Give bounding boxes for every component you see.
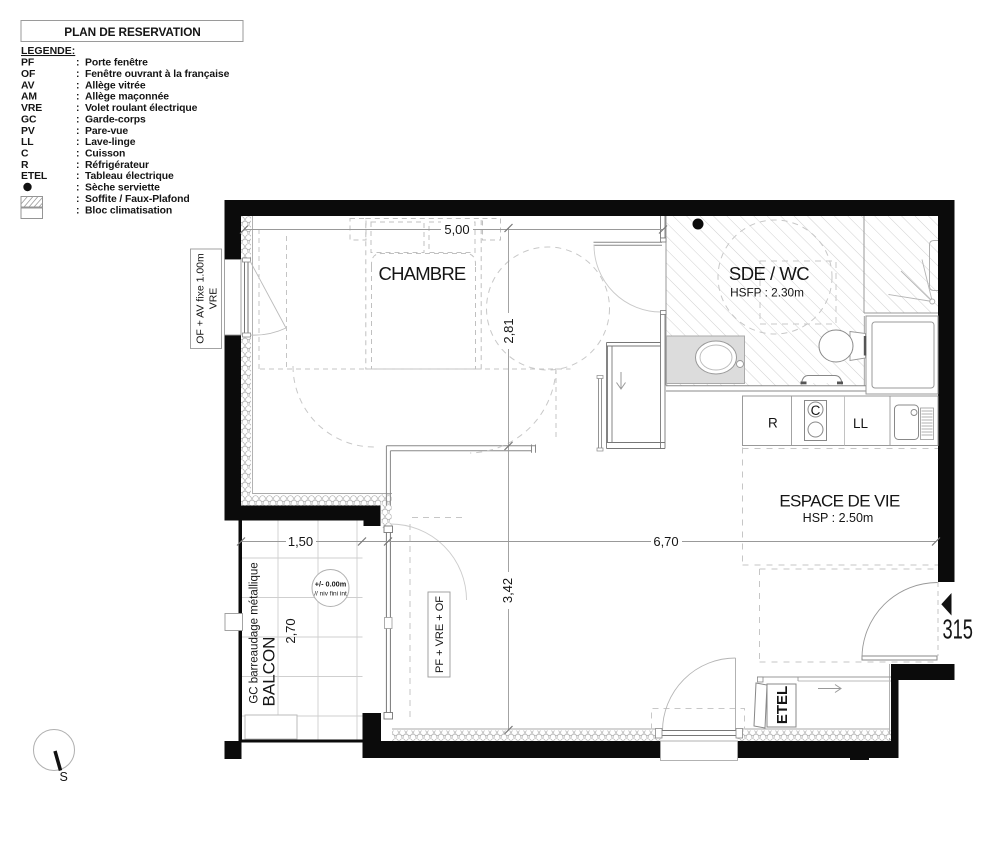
svg-text:CHAMBRE: CHAMBRE	[379, 263, 466, 284]
svg-text::: :	[76, 205, 79, 216]
svg-text:6,70: 6,70	[653, 534, 678, 549]
svg-text:Réfrigérateur: Réfrigérateur	[85, 160, 149, 171]
svg-text:ETEL: ETEL	[21, 171, 48, 182]
svg-text:AM: AM	[21, 92, 37, 103]
svg-text:2,81: 2,81	[501, 318, 516, 343]
svg-text:Porte fenêtre: Porte fenêtre	[85, 58, 148, 69]
svg-text:HSFP : 2.30m: HSFP : 2.30m	[730, 286, 804, 300]
svg-text:GC: GC	[21, 114, 37, 125]
svg-text::: :	[76, 69, 79, 80]
svg-text:C: C	[21, 149, 29, 160]
svg-text:ESPACE DE VIE: ESPACE DE VIE	[779, 492, 900, 511]
svg-text:Pare-vue: Pare-vue	[85, 126, 128, 137]
svg-text:2,70: 2,70	[283, 618, 298, 643]
svg-text:PLAN DE RESERVATION: PLAN DE RESERVATION	[64, 25, 200, 39]
svg-text::: :	[76, 103, 79, 114]
svg-text:Bloc climatisation: Bloc climatisation	[85, 205, 172, 216]
svg-text::: :	[76, 160, 79, 171]
svg-text:Lave-linge: Lave-linge	[85, 137, 136, 148]
svg-text:S: S	[60, 770, 68, 784]
svg-text:R: R	[768, 416, 778, 431]
svg-text:Soffite / Faux-Plafond: Soffite / Faux-Plafond	[85, 194, 190, 205]
svg-text::: :	[76, 80, 79, 91]
svg-text:LL: LL	[21, 137, 34, 148]
svg-text:BALCON: BALCON	[260, 637, 279, 707]
svg-text:1,50: 1,50	[288, 534, 313, 549]
svg-text:PF + VRE + OF: PF + VRE + OF	[434, 596, 446, 673]
svg-text:Allège vitrée: Allège vitrée	[85, 80, 146, 91]
svg-text:VRE: VRE	[207, 288, 219, 310]
svg-text:PV: PV	[21, 126, 35, 137]
svg-text::: :	[76, 114, 79, 125]
svg-text:LEGENDE:: LEGENDE:	[21, 45, 75, 57]
svg-text::: :	[76, 92, 79, 103]
svg-text:5,00: 5,00	[444, 222, 469, 237]
svg-text:Volet roulant électrique: Volet roulant électrique	[85, 103, 198, 114]
svg-text::: :	[76, 183, 79, 194]
svg-text:OF: OF	[21, 69, 35, 80]
svg-text:LL: LL	[853, 416, 869, 431]
svg-text::: :	[76, 194, 79, 205]
svg-text:ETEL: ETEL	[774, 686, 791, 724]
svg-text:SDE / WC: SDE / WC	[729, 263, 809, 284]
svg-text:+/- 0.00m: +/- 0.00m	[315, 580, 347, 589]
svg-text:C: C	[811, 403, 821, 418]
svg-text::: :	[76, 126, 79, 137]
svg-text:Tableau électrique: Tableau électrique	[85, 171, 174, 182]
svg-text:Fenêtre ouvrant à la française: Fenêtre ouvrant à la française	[85, 69, 230, 80]
svg-text:OF + AV fixe 1.00m: OF + AV fixe 1.00m	[194, 253, 206, 344]
svg-text:Sèche serviette: Sèche serviette	[85, 183, 160, 194]
svg-text:AV: AV	[21, 80, 35, 91]
svg-text:315: 315	[942, 614, 973, 645]
svg-text::: :	[76, 149, 79, 160]
svg-text:3,42: 3,42	[500, 578, 515, 603]
svg-text::: :	[76, 58, 79, 69]
svg-text:VRE: VRE	[21, 103, 42, 114]
svg-text::: :	[76, 171, 79, 182]
svg-text:Garde-corps: Garde-corps	[85, 114, 146, 125]
svg-text:// niv fini int: // niv fini int	[314, 591, 347, 598]
svg-text:Allège maçonnée: Allège maçonnée	[85, 92, 169, 103]
svg-text:PF: PF	[21, 58, 34, 69]
svg-text:R: R	[21, 160, 29, 171]
svg-text:HSP : 2.50m: HSP : 2.50m	[803, 511, 874, 525]
svg-text::: :	[76, 137, 79, 148]
svg-text:Cuisson: Cuisson	[85, 149, 125, 160]
